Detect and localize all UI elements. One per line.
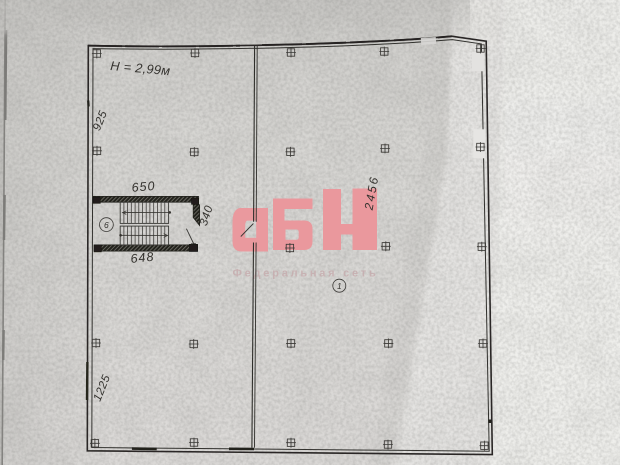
svg-text:1: 1 — [337, 282, 341, 291]
svg-text:650: 650 — [131, 179, 156, 195]
svg-text:648: 648 — [130, 250, 155, 266]
svg-text:Федеральная сеть: Федеральная сеть — [233, 268, 378, 280]
svg-text:6: 6 — [104, 220, 109, 230]
